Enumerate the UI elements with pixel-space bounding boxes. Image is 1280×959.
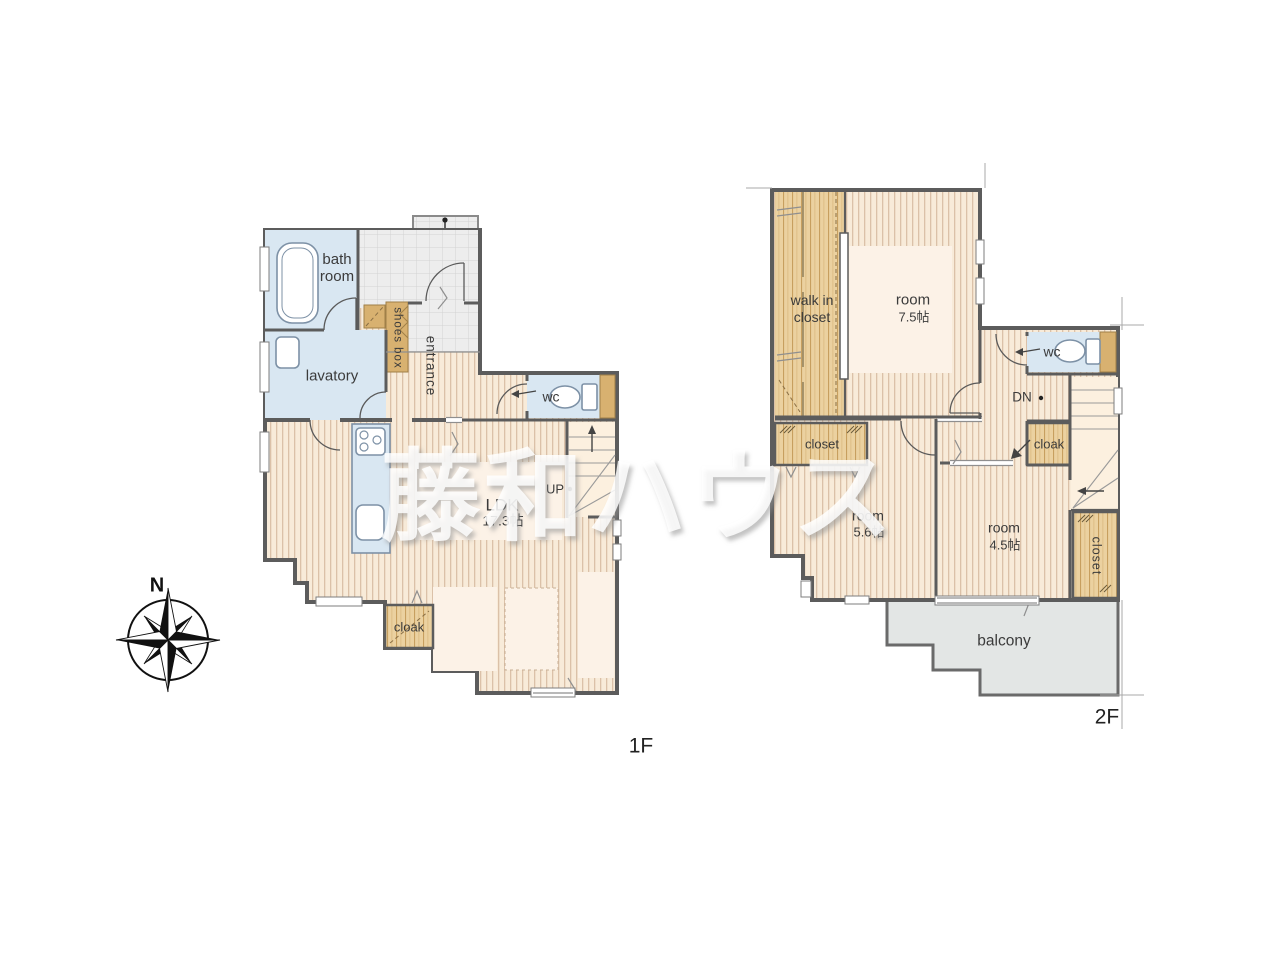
compass-rose-icon — [116, 588, 220, 692]
walk-in-closet-label: walk in closet — [779, 292, 845, 326]
room75-size-label: 7.5帖 — [898, 309, 929, 326]
floor2-tag: 2F — [1095, 709, 1120, 726]
floor-plan-image: N bath room lavatory shoes box entrance … — [0, 0, 1280, 959]
stairs2-floor — [1071, 377, 1118, 510]
stairs-up-label: UP — [546, 481, 564, 498]
room45-size-label: 4.5帖 — [989, 537, 1020, 554]
room45-label: room — [988, 520, 1020, 537]
ldk-label: LDK — [485, 497, 518, 514]
floor1-tag: 1F — [629, 738, 654, 755]
wc1-label: wc — [542, 389, 559, 406]
wc2-shelf — [1100, 332, 1116, 372]
room75-label: room — [896, 292, 930, 309]
closet-left-label: closet — [805, 436, 839, 453]
toilet2-icon — [1055, 339, 1100, 364]
stairs-dn-label: DN — [1012, 389, 1032, 406]
washbasin-icon — [276, 337, 299, 368]
wc1-shelf — [600, 375, 615, 418]
sink-icon — [356, 505, 384, 540]
bathroom-label: bath room — [310, 251, 364, 285]
entrance-label: entrance — [423, 336, 440, 397]
balcony-label: balcony — [977, 633, 1030, 650]
lavatory-label: lavatory — [306, 368, 359, 385]
room56-size-label: 5.6帖 — [853, 524, 884, 541]
floor1-plan — [260, 216, 621, 697]
closet-right-label: closet — [1088, 537, 1105, 576]
cloak2-label: cloak — [1034, 436, 1064, 453]
room56-label: room — [852, 508, 884, 525]
kitchen-counter — [352, 424, 390, 553]
compass-north-label: N — [150, 578, 164, 595]
shoes-box-label: shoes box — [389, 307, 406, 368]
wc2-label: wc — [1043, 344, 1060, 361]
floor-plan-drawing — [0, 0, 1280, 959]
cloak1-label: cloak — [394, 619, 424, 636]
ldk-size-label: 17.3帖 — [482, 513, 523, 530]
